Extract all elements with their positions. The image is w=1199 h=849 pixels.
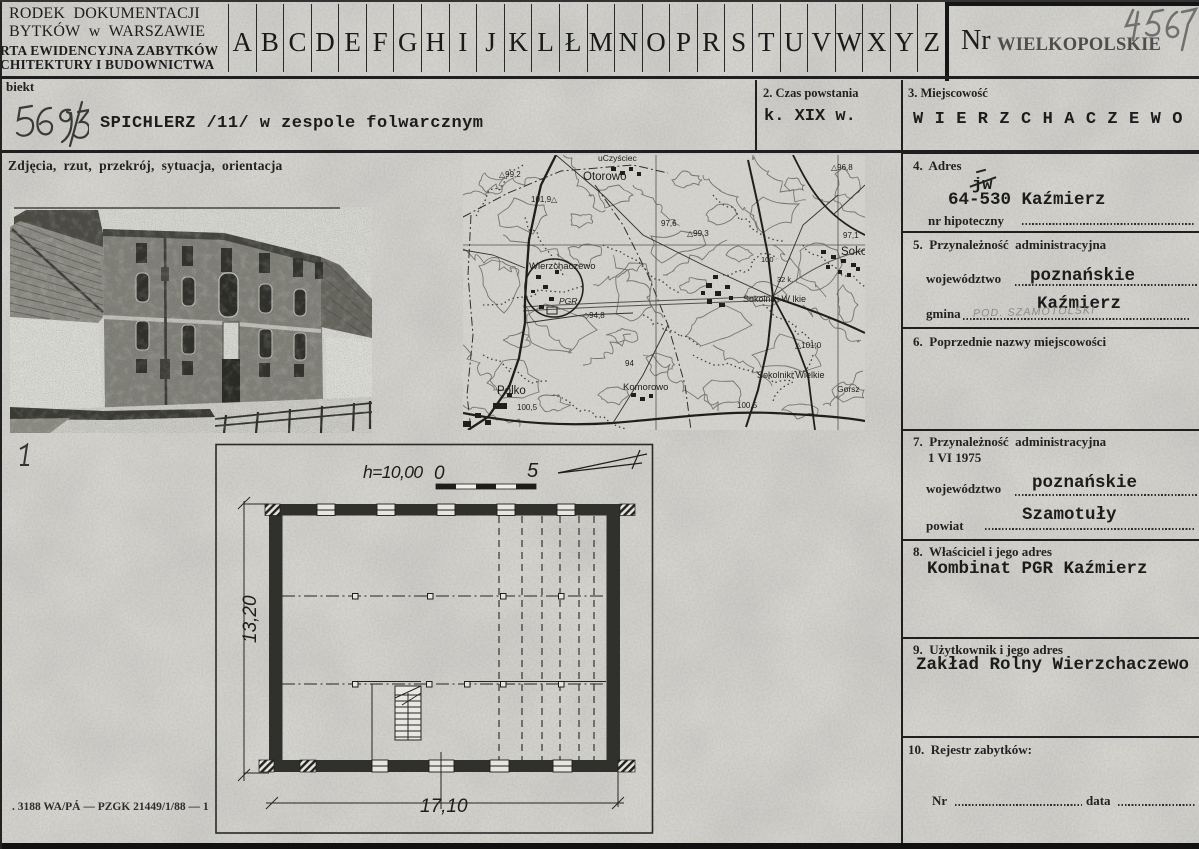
svg-text:0: 0: [434, 463, 445, 484]
svg-text:13,20: 13,20: [240, 595, 261, 643]
svg-text:5: 5: [527, 460, 539, 482]
svg-text:17,10: 17,10: [420, 796, 468, 817]
svg-text:h=10,00: h=10,00: [363, 462, 423, 482]
